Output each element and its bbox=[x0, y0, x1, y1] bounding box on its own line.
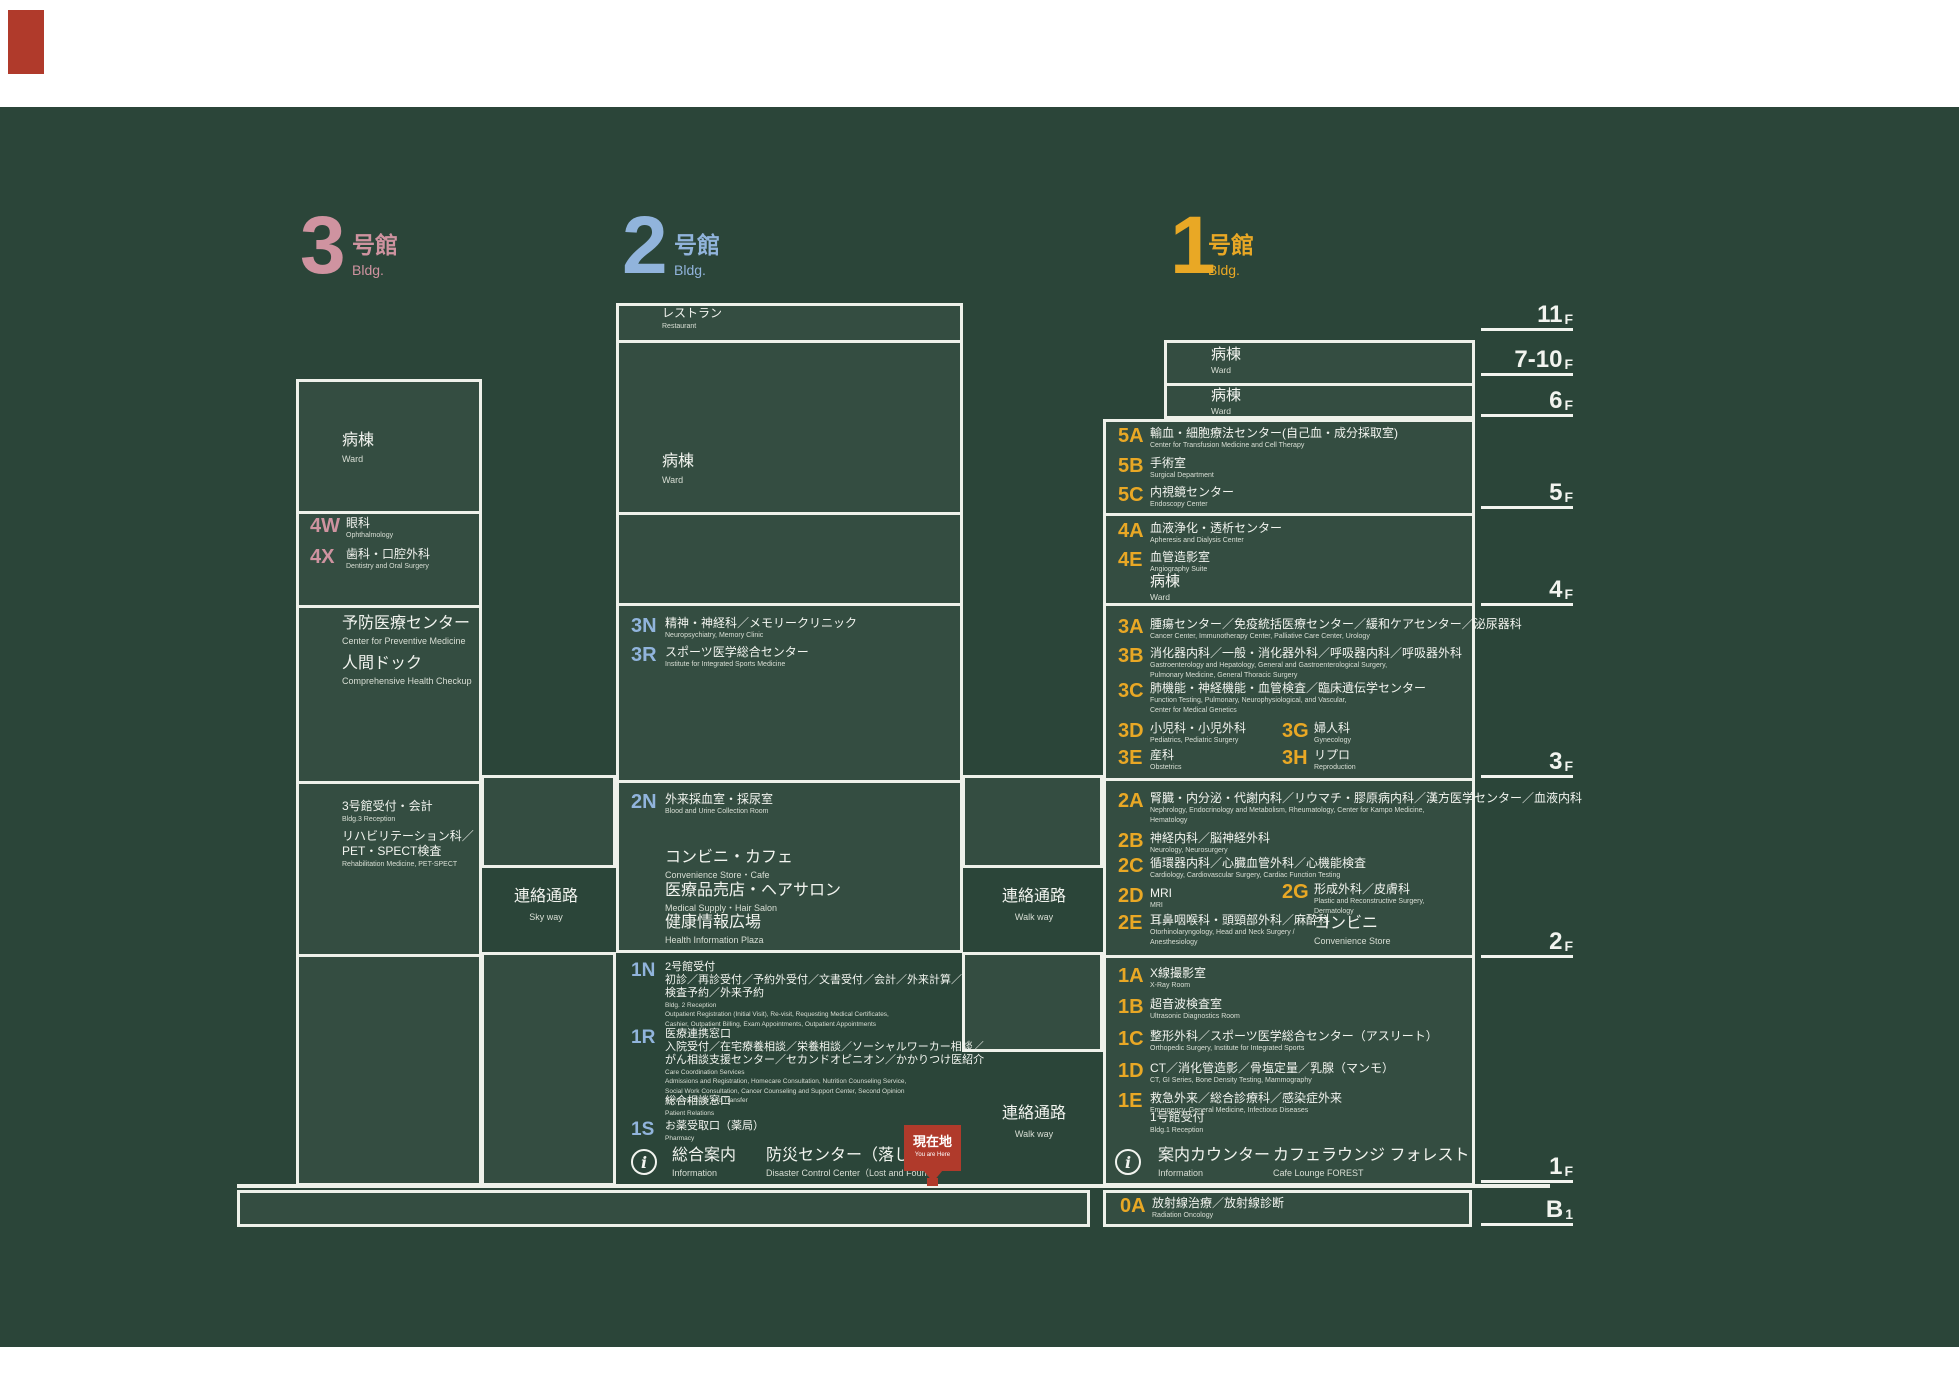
label-jp-line: 病棟 bbox=[1211, 387, 1241, 404]
label-bldg3-reception: 3号館受付・会計Bldg.3 Reception bbox=[342, 799, 433, 824]
room-entry-body: 小児科・小児外科Pediatrics, Pediatric Surgery bbox=[1150, 721, 1246, 745]
room-jp-line: 手術室 bbox=[1150, 456, 1214, 470]
room-jp-line: CT／消化管造影／骨塩定量／乳腺（マンモ） bbox=[1150, 1061, 1394, 1075]
room-en-line: Cardiology, Cardiovascular Surgery, Card… bbox=[1150, 872, 1366, 880]
room-entry-3N: 3N精神・神経科／メモリークリニックNeuropsychiatry, Memor… bbox=[631, 616, 857, 640]
room-entry-総合相談窓口: 総合相談窓口Patient Relations bbox=[665, 1095, 731, 1117]
label-jp-line: 案内カウンター bbox=[1158, 1147, 1270, 1165]
room-code: 1C bbox=[1118, 1029, 1144, 1049]
building-subtitle: Bldg. bbox=[1208, 262, 1254, 278]
room-jp-line: 血液浄化・透析センター bbox=[1150, 521, 1282, 535]
room-en-line: Pediatrics, Pediatric Surgery bbox=[1150, 737, 1246, 745]
label-jp-line: 病棟 bbox=[342, 431, 374, 450]
label-en-line: Ward bbox=[1211, 407, 1241, 416]
label-general-info: 総合案内Information bbox=[672, 1147, 736, 1178]
room-en-line: Social Work Consultation, Cancer Counsel… bbox=[665, 1088, 984, 1095]
bridge-en: Walk way bbox=[1002, 1129, 1066, 1139]
room-jp-line: 腫瘍センター／免疫統括医療センター／緩和ケアセンター／泌尿器科 bbox=[1150, 617, 1522, 631]
room-jp-line: 歯科・口腔外科 bbox=[346, 547, 430, 561]
room-jp-line: 循環器内科／心臓血管外科／心機能検査 bbox=[1150, 856, 1366, 870]
you-are-here-stem bbox=[927, 1178, 938, 1186]
room-en-line: Endoscopy Center bbox=[1150, 501, 1234, 509]
bridge-label-skyway: 連絡通路Sky way bbox=[514, 888, 578, 922]
room-code: 4A bbox=[1118, 521, 1144, 541]
room-entry-0A: 0A放射線治療／放射線診断Radiation Oncology bbox=[1120, 1196, 1284, 1220]
room-entry-1A: 1AX線撮影室X-Ray Room bbox=[1118, 966, 1206, 990]
bridge-jp: 連絡通路 bbox=[514, 888, 578, 906]
room-jp-line: 医療連携窓口 bbox=[665, 1028, 984, 1041]
label-en-line: Rehabilitation Medicine, PET-SPECT bbox=[342, 861, 474, 869]
room-en-line: Institute for Integrated Sports Medicine bbox=[665, 661, 809, 669]
room-en-line: Dermatology bbox=[1314, 908, 1424, 916]
label-jp-line: 医療品売店・ヘアサロン bbox=[665, 882, 841, 900]
room-en-line: Patient Relations bbox=[665, 1110, 731, 1117]
room-code: 1N bbox=[631, 961, 655, 980]
room-jp-line: お薬受取口（薬局） bbox=[665, 1120, 764, 1133]
label-cafe-lounge: カフェラウンジ フォレストCafe Lounge FOREST bbox=[1273, 1147, 1469, 1178]
room-entry-body: 総合相談窓口Patient Relations bbox=[665, 1095, 731, 1117]
label-en-line: Medical Supply・Hair Salon bbox=[665, 903, 841, 913]
room-code: 2C bbox=[1118, 856, 1144, 876]
room-jp-line: 消化器内科／一般・消化器外科／呼吸器内科／呼吸器外科 bbox=[1150, 646, 1462, 660]
label-ward-bldg2: 病棟Ward bbox=[662, 452, 694, 485]
room-en-line: Admissions and Registration, Homecare Co… bbox=[665, 1078, 984, 1085]
room-en-line: Orthopedic Surgery, Institute for Integr… bbox=[1150, 1045, 1438, 1053]
building-title: 号館 bbox=[674, 233, 720, 257]
room-entry-1D: 1DCT／消化管造影／骨塩定量／乳腺（マンモ）CT, GI Series, Bo… bbox=[1118, 1061, 1394, 1085]
bridge-jp: 連絡通路 bbox=[1002, 1105, 1066, 1123]
bottom-white-band bbox=[0, 1347, 1959, 1380]
label-en-line: Bldg.1 Reception bbox=[1150, 1127, 1205, 1135]
room-entry-body: 超音波検査室Ultrasonic Diagnostics Room bbox=[1150, 997, 1240, 1021]
room-entry-5C: 5C内視鏡センターEndoscopy Center bbox=[1118, 485, 1234, 509]
room-en-line: Function Testing, Pulmonary, Neurophysio… bbox=[1150, 697, 1426, 705]
building-title-group: 号館Bldg. bbox=[352, 233, 398, 278]
label-en-line: Cafe Lounge FOREST bbox=[1273, 1168, 1469, 1178]
label-en-line: Ward bbox=[342, 454, 374, 464]
label-ward-bldg3: 病棟Ward bbox=[342, 431, 374, 464]
building-number: 3 bbox=[300, 205, 346, 287]
room-entry-4X: 4X歯科・口腔外科Dentistry and Oral Surgery bbox=[310, 547, 430, 571]
bridge-en: Walk way bbox=[1002, 912, 1066, 922]
room-en-line: Radiation Oncology bbox=[1152, 1212, 1284, 1220]
room-entry-5B: 5B手術室Surgical Department bbox=[1118, 456, 1214, 480]
room-jp-line: 総合相談窓口 bbox=[665, 1095, 731, 1108]
you-are-here-marker: 現在地 You are Here bbox=[904, 1125, 961, 1171]
room-entry-body: 内視鏡センターEndoscopy Center bbox=[1150, 485, 1234, 509]
room-en-line: Reproduction bbox=[1314, 764, 1356, 772]
room-en-line: Cashier, Outpatient Billing, Exam Appoin… bbox=[665, 1021, 962, 1028]
room-en-line: Emergency, General Medicine, Infectious … bbox=[1150, 1107, 1342, 1115]
room-entry-1E: 1E救急外来／総合診療科／感染症外来Emergency, General Med… bbox=[1118, 1091, 1342, 1115]
room-code: 1D bbox=[1118, 1061, 1144, 1081]
label-jp-line: カフェラウンジ フォレスト bbox=[1273, 1147, 1469, 1165]
label-jp-line: PET・SPECT検査 bbox=[342, 844, 474, 859]
room-jp-line: X線撮影室 bbox=[1150, 966, 1206, 980]
label-jp-line: 人間ドック bbox=[342, 655, 472, 673]
room-entry-body: 2号館受付初診／再診受付／予約外受付／文書受付／会計／外来計算／検査予約／外来予… bbox=[665, 961, 962, 1028]
room-code: 2N bbox=[631, 792, 657, 812]
room-entry-body: 手術室Surgical Department bbox=[1150, 456, 1214, 480]
room-entry-3B: 3B消化器内科／一般・消化器外科／呼吸器内科／呼吸器外科Gastroentero… bbox=[1118, 646, 1462, 679]
label-en-line: Comprehensive Health Checkup bbox=[342, 676, 472, 686]
room-code: 4E bbox=[1118, 550, 1142, 570]
room-code: 5A bbox=[1118, 426, 1144, 446]
room-code: 2D bbox=[1118, 886, 1144, 906]
room-en-line: Plastic and Reconstructive Surgery, bbox=[1314, 898, 1424, 906]
room-entry-1R: 1R医療連携窓口入院受付／在宅療養相談／栄養相談／ソーシャルワーカー相談／がん相… bbox=[631, 1028, 984, 1104]
label-en-line: Bldg.3 Reception bbox=[342, 816, 433, 824]
room-jp-line: 眼科 bbox=[346, 516, 393, 530]
room-code: 3G bbox=[1282, 721, 1309, 741]
room-entry-1S: 1Sお薬受取口（薬局）Pharmacy bbox=[631, 1120, 764, 1142]
info-icons-layer: ii bbox=[0, 0, 1959, 1380]
room-code: 3B bbox=[1118, 646, 1144, 666]
room-jp-line: 超音波検査室 bbox=[1150, 997, 1240, 1011]
room-en-line: Otorhinolaryngology, Head and Neck Surge… bbox=[1150, 929, 1330, 937]
room-en-line: Center for Medical Genetics bbox=[1150, 707, 1426, 715]
room-en-line: Cancer Center, Immunotherapy Center, Pal… bbox=[1150, 633, 1522, 641]
room-jp-line: 救急外来／総合診療科／感染症外来 bbox=[1150, 1091, 1342, 1105]
room-en-line: Ophthalmology bbox=[346, 532, 393, 540]
building-title-group: 号館Bldg. bbox=[674, 233, 720, 278]
building-title: 号館 bbox=[352, 233, 398, 257]
room-jp-line: 内視鏡センター bbox=[1150, 485, 1234, 499]
bridge-label-walkway-2f: 連絡通路Walk way bbox=[1002, 888, 1066, 922]
room-entry-3E: 3E産科Obstetrics bbox=[1118, 748, 1182, 772]
room-en-line: Pharmacy bbox=[665, 1135, 764, 1142]
bridge-label-walkway-1f: 連絡通路Walk way bbox=[1002, 1105, 1066, 1139]
room-code: 5C bbox=[1118, 485, 1144, 505]
label-health-plaza: 健康情報広場Health Information Plaza bbox=[665, 914, 764, 945]
room-entry-body: 医療連携窓口入院受付／在宅療養相談／栄養相談／ソーシャルワーカー相談／がん相談支… bbox=[665, 1028, 984, 1104]
room-jp-line: スポーツ医学総合センター bbox=[665, 645, 809, 659]
label-health-checkup: 人間ドックComprehensive Health Checkup bbox=[342, 655, 472, 686]
room-entry-3H: 3HリプロReproduction bbox=[1282, 748, 1356, 772]
room-entry-body: MRIMRI bbox=[1150, 886, 1172, 910]
room-jp-line: 血管造影室 bbox=[1150, 550, 1210, 564]
room-jp-line: 入院受付／在宅療養相談／栄養相談／ソーシャルワーカー相談／ bbox=[665, 1041, 984, 1054]
room-entry-5A: 5A輸血・細胞療法センター(自己血・成分採取室)Center for Trans… bbox=[1118, 426, 1398, 450]
building-number: 2 bbox=[622, 205, 668, 287]
ground-line bbox=[237, 1184, 1550, 1188]
label-info-counter: 案内カウンターInformation bbox=[1158, 1147, 1270, 1178]
label-restaurant: レストランRestaurant bbox=[662, 306, 722, 331]
label-preventive-center: 予防医療センターCenter for Preventive Medicine bbox=[342, 615, 470, 646]
room-entry-2D: 2DMRIMRI bbox=[1118, 886, 1172, 910]
room-jp-line: 精神・神経科／メモリークリニック bbox=[665, 616, 857, 630]
bridge-en: Sky way bbox=[514, 912, 578, 922]
building-subtitle: Bldg. bbox=[674, 262, 720, 278]
room-entry-body: 耳鼻咽喉科・頭頸部外科／麻酔科Otorhinolaryngology, Head… bbox=[1150, 913, 1330, 946]
room-code: 1B bbox=[1118, 997, 1144, 1017]
room-entry-body: 輸血・細胞療法センター(自己血・成分採取室)Center for Transfu… bbox=[1150, 426, 1398, 450]
label-jp-line: 病棟 bbox=[1211, 346, 1241, 363]
room-code: 2A bbox=[1118, 791, 1144, 811]
label-en-line: Center for Preventive Medicine bbox=[342, 636, 470, 646]
room-jp-line: 外来採血室・採尿室 bbox=[665, 792, 773, 806]
room-entry-2E: 2E耳鼻咽喉科・頭頸部外科／麻酔科Otorhinolaryngology, He… bbox=[1118, 913, 1330, 946]
building-subtitle: Bldg. bbox=[352, 262, 398, 278]
room-code: 3C bbox=[1118, 681, 1144, 701]
room-jp-line: 婦人科 bbox=[1314, 721, 1351, 735]
room-entry-body: 婦人科Gynecology bbox=[1314, 721, 1351, 745]
marker-label-jp: 現在地 bbox=[904, 1131, 961, 1150]
room-code: 0A bbox=[1120, 1196, 1146, 1216]
room-entry-1B: 1B超音波検査室Ultrasonic Diagnostics Room bbox=[1118, 997, 1240, 1021]
room-code: 1E bbox=[1118, 1091, 1142, 1111]
room-en-line: Obstetrics bbox=[1150, 764, 1182, 772]
label-jp-line: 総合案内 bbox=[672, 1147, 736, 1165]
room-entry-body: 眼科Ophthalmology bbox=[346, 516, 393, 540]
room-entry-3A: 3A腫瘍センター／免疫統括医療センター／緩和ケアセンター／泌尿器科Cancer … bbox=[1118, 617, 1522, 641]
room-entry-1N: 1N2号館受付初診／再診受付／予約外受付／文書受付／会計／外来計算／検査予約／外… bbox=[631, 961, 962, 1028]
label-jp-line: 病棟 bbox=[662, 452, 694, 471]
room-en-line: Gynecology bbox=[1314, 737, 1351, 745]
room-entry-3R: 3Rスポーツ医学総合センターInstitute for Integrated S… bbox=[631, 645, 809, 669]
label-en-line: Health Information Plaza bbox=[665, 935, 764, 945]
room-entry-body: 腫瘍センター／免疫統括医療センター／緩和ケアセンター／泌尿器科Cancer Ce… bbox=[1150, 617, 1522, 641]
label-ward-7-10f: 病棟Ward bbox=[1211, 346, 1241, 375]
label-en-line: Ward bbox=[1150, 593, 1180, 602]
room-entry-body: スポーツ医学総合センターInstitute for Integrated Spo… bbox=[665, 645, 809, 669]
room-code: 2E bbox=[1118, 913, 1142, 933]
label-medical-supply: 医療品売店・ヘアサロンMedical Supply・Hair Salon bbox=[665, 882, 841, 913]
room-en-line: Angiography Suite bbox=[1150, 566, 1210, 574]
label-en-line: Ward bbox=[1211, 366, 1241, 375]
room-en-line: Nephrology, Endocrinology and Metabolism… bbox=[1150, 807, 1582, 815]
room-entry-body: 血管造影室Angiography Suite bbox=[1150, 550, 1210, 574]
room-entry-2C: 2C循環器内科／心臓血管外科／心機能検査Cardiology, Cardiova… bbox=[1118, 856, 1366, 880]
room-jp-line: 整形外科／スポーツ医学総合センター（アスリート） bbox=[1150, 1029, 1438, 1043]
label-jp-line: 予防医療センター bbox=[342, 615, 470, 633]
room-entry-4W: 4W眼科Ophthalmology bbox=[310, 516, 393, 540]
room-entry-2N: 2N外来採血室・採尿室Blood and Urine Collection Ro… bbox=[631, 792, 773, 816]
room-jp-line: 肺機能・神経機能・血管検査／臨床遺伝学センター bbox=[1150, 681, 1426, 695]
room-jp-line: 腎臓・内分泌・代謝内科／リウマチ・膠原病内科／漢方医学センター／血液内科 bbox=[1150, 791, 1582, 805]
room-entry-1C: 1C整形外科／スポーツ医学総合センター（アスリート）Orthopedic Sur… bbox=[1118, 1029, 1438, 1053]
room-entry-body: 腎臓・内分泌・代謝内科／リウマチ・膠原病内科／漢方医学センター／血液内科Neph… bbox=[1150, 791, 1582, 824]
room-jp-line: 耳鼻咽喉科・頭頸部外科／麻酔科 bbox=[1150, 913, 1330, 927]
room-en-line: Dentistry and Oral Surgery bbox=[346, 563, 430, 571]
room-en-line: Ultrasonic Diagnostics Room bbox=[1150, 1013, 1240, 1021]
room-code: 1R bbox=[631, 1028, 655, 1047]
room-jp-line: MRI bbox=[1150, 886, 1172, 900]
room-jp-line: 検査予約／外来予約 bbox=[665, 987, 962, 1000]
room-en-line: Bldg. 2 Reception bbox=[665, 1002, 962, 1009]
label-jp-line: 病棟 bbox=[1150, 573, 1180, 590]
label-en-line: Information bbox=[672, 1168, 736, 1178]
room-jp-line: 神経内科／脳神経外科 bbox=[1150, 831, 1270, 845]
room-code: 3R bbox=[631, 645, 657, 665]
room-en-line: Center for Transfusion Medicine and Cell… bbox=[1150, 442, 1398, 450]
room-entry-4E: 4E血管造影室Angiography Suite bbox=[1118, 550, 1210, 574]
room-en-line: MRI bbox=[1150, 902, 1172, 910]
room-entry-3C: 3C肺機能・神経機能・血管検査／臨床遺伝学センターFunction Testin… bbox=[1118, 681, 1426, 714]
label-ward-6f: 病棟Ward bbox=[1211, 387, 1241, 416]
label-convenience-cafe: コンビニ・カフェConvenience Store・Cafe bbox=[665, 849, 793, 880]
room-entry-2B: 2B神経内科／脳神経外科Neurology, Neurosurgery bbox=[1118, 831, 1270, 855]
room-jp-line: 2号館受付 bbox=[665, 961, 962, 974]
room-en-line: Surgical Department bbox=[1150, 472, 1214, 480]
room-entry-body: 精神・神経科／メモリークリニックNeuropsychiatry, Memory … bbox=[665, 616, 857, 640]
room-en-line: Neurology, Neurosurgery bbox=[1150, 847, 1270, 855]
room-code: 3E bbox=[1118, 748, 1142, 768]
room-entry-body: 歯科・口腔外科Dentistry and Oral Surgery bbox=[346, 547, 430, 571]
room-entry-body: 形成外科／皮膚科Plastic and Reconstructive Surge… bbox=[1314, 882, 1424, 915]
bridge-jp: 連絡通路 bbox=[1002, 888, 1066, 906]
room-code: 1S bbox=[631, 1120, 654, 1139]
room-entry-body: 肺機能・神経機能・血管検査／臨床遺伝学センターFunction Testing,… bbox=[1150, 681, 1426, 714]
label-en-line: Convenience Store・Cafe bbox=[665, 870, 793, 880]
room-jp-line: 形成外科／皮膚科 bbox=[1314, 882, 1424, 896]
room-code: 4X bbox=[310, 547, 334, 567]
room-entry-body: CT／消化管造影／骨塩定量／乳腺（マンモ）CT, GI Series, Bone… bbox=[1150, 1061, 1394, 1085]
room-code: 1A bbox=[1118, 966, 1144, 986]
room-code: 3N bbox=[631, 616, 657, 636]
room-en-line: Apheresis and Dialysis Center bbox=[1150, 537, 1282, 545]
floor-guide-signboard: 3号館Bldg.2号館Bldg.1号館Bldg. 11F7-10F6F5F4F3… bbox=[0, 0, 1959, 1380]
label-jp-line: 3号館受付・会計 bbox=[342, 799, 433, 814]
label-jp-line: リハビリテーション科／ bbox=[342, 829, 474, 844]
room-jp-line: 輸血・細胞療法センター(自己血・成分採取室) bbox=[1150, 426, 1398, 440]
room-en-line: Outpatient Registration (Initial Visit),… bbox=[665, 1011, 962, 1018]
room-en-line: Blood and Urine Collection Room bbox=[665, 808, 773, 816]
room-code: 3D bbox=[1118, 721, 1144, 741]
room-entry-body: お薬受取口（薬局）Pharmacy bbox=[665, 1120, 764, 1142]
room-entry-2G: 2G形成外科／皮膚科Plastic and Reconstructive Sur… bbox=[1282, 882, 1424, 915]
room-code: 4W bbox=[310, 516, 340, 536]
room-code: 2B bbox=[1118, 831, 1144, 851]
label-en-line: Restaurant bbox=[662, 323, 722, 331]
label-jp-line: コンビニ・カフェ bbox=[665, 849, 793, 867]
room-entry-body: 救急外来／総合診療科／感染症外来Emergency, General Medic… bbox=[1150, 1091, 1342, 1115]
room-en-line: X-Ray Room bbox=[1150, 982, 1206, 990]
room-entry-body: 循環器内科／心臓血管外科／心機能検査Cardiology, Cardiovasc… bbox=[1150, 856, 1366, 880]
room-code: 2G bbox=[1282, 882, 1309, 902]
room-entry-body: 整形外科／スポーツ医学総合センター（アスリート）Orthopedic Surge… bbox=[1150, 1029, 1438, 1053]
label-rehabilitation: リハビリテーション科／PET・SPECT検査Rehabilitation Med… bbox=[342, 829, 474, 869]
label-en-line: Information bbox=[1158, 1168, 1270, 1178]
room-entry-body: 放射線治療／放射線診断Radiation Oncology bbox=[1152, 1196, 1284, 1220]
room-en-line: Care Coordination Services bbox=[665, 1069, 984, 1076]
building-title: 号館 bbox=[1208, 233, 1254, 257]
room-en-line: Anesthesiology bbox=[1150, 939, 1330, 947]
room-en-line: Neuropsychiatry, Memory Clinic bbox=[665, 632, 857, 640]
room-jp-line: 産科 bbox=[1150, 748, 1182, 762]
room-en-line: Pulmonary Medicine, General Thoracic Sur… bbox=[1150, 672, 1462, 680]
room-code: 5B bbox=[1118, 456, 1144, 476]
room-entry-3G: 3G婦人科Gynecology bbox=[1282, 721, 1351, 745]
label-en-line: Ward bbox=[662, 475, 694, 485]
room-code: 3A bbox=[1118, 617, 1144, 637]
room-jp-line: がん相談支援センター／セカンドオピニオン／かかりつけ医紹介 bbox=[665, 1054, 984, 1067]
label-ward-4f: 病棟Ward bbox=[1150, 573, 1180, 602]
room-entry-body: リプロReproduction bbox=[1314, 748, 1356, 772]
room-entry-4A: 4A血液浄化・透析センターApheresis and Dialysis Cent… bbox=[1118, 521, 1282, 545]
room-entry-body: X線撮影室X-Ray Room bbox=[1150, 966, 1206, 990]
room-entry-body: 血液浄化・透析センターApheresis and Dialysis Center bbox=[1150, 521, 1282, 545]
room-jp-line: 小児科・小児外科 bbox=[1150, 721, 1246, 735]
info-icon-bldg1: i bbox=[1115, 1149, 1141, 1175]
room-entry-body: 消化器内科／一般・消化器外科／呼吸器内科／呼吸器外科Gastroenterolo… bbox=[1150, 646, 1462, 679]
room-jp-line: リプロ bbox=[1314, 748, 1356, 762]
room-en-line: Hematology bbox=[1150, 817, 1582, 825]
room-jp-line: 初診／再診受付／予約外受付／文書受付／会計／外来計算／ bbox=[665, 974, 962, 987]
room-jp-line: 放射線治療／放射線診断 bbox=[1152, 1196, 1284, 1210]
room-entry-2A: 2A腎臓・内分泌・代謝内科／リウマチ・膠原病内科／漢方医学センター／血液内科Ne… bbox=[1118, 791, 1582, 824]
info-icon-bldg2: i bbox=[631, 1149, 657, 1175]
room-entry-3D: 3D小児科・小児外科Pediatrics, Pediatric Surgery bbox=[1118, 721, 1246, 745]
marker-label-en: You are Here bbox=[904, 1152, 961, 1158]
room-en-line: Gastroenterology and Hepatology, General… bbox=[1150, 662, 1462, 670]
room-entry-body: 外来採血室・採尿室Blood and Urine Collection Room bbox=[665, 792, 773, 816]
room-entry-body: 神経内科／脳神経外科Neurology, Neurosurgery bbox=[1150, 831, 1270, 855]
building-title-group: 号館Bldg. bbox=[1208, 233, 1254, 278]
room-en-line: CT, GI Series, Bone Density Testing, Mam… bbox=[1150, 1077, 1394, 1085]
room-entry-body: 産科Obstetrics bbox=[1150, 748, 1182, 772]
room-code: 3H bbox=[1282, 748, 1308, 768]
label-jp-line: 健康情報広場 bbox=[665, 914, 764, 932]
label-jp-line: レストラン bbox=[662, 306, 722, 321]
